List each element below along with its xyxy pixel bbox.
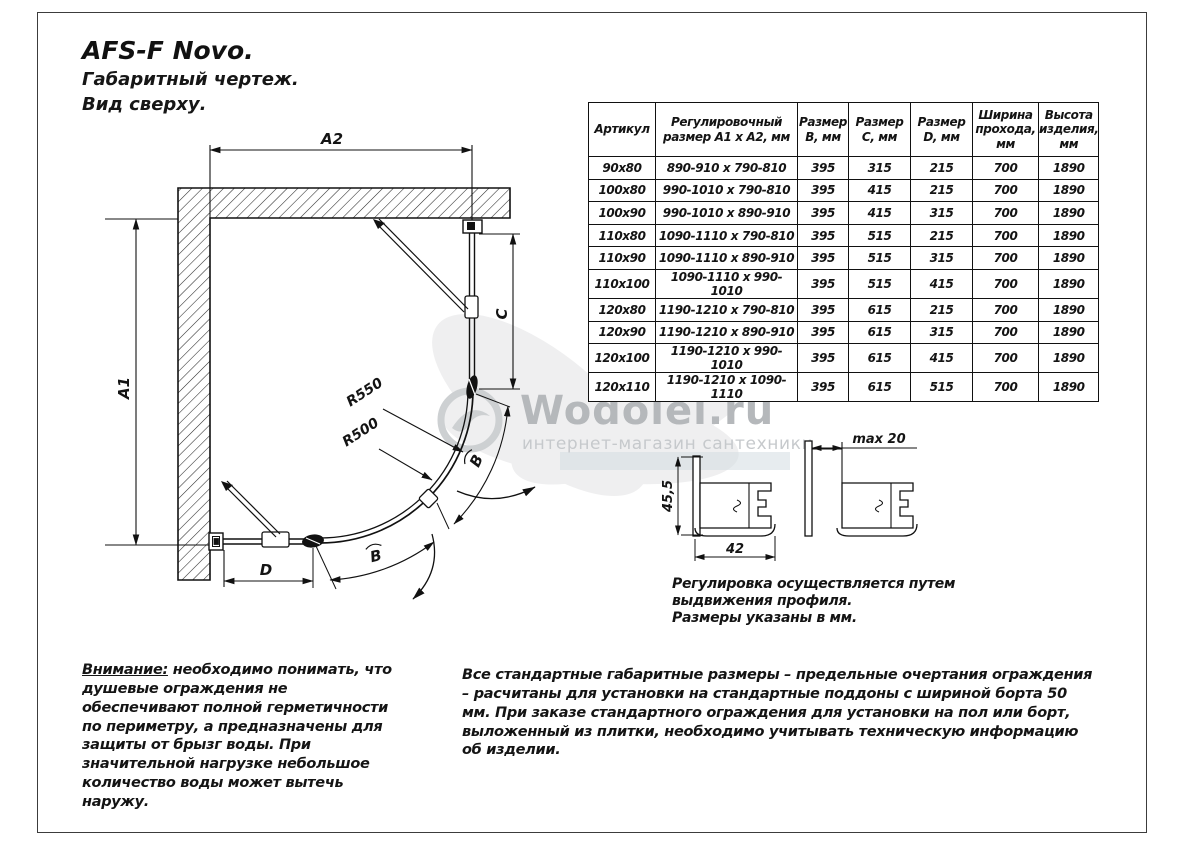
table-cell: 1890: [1039, 298, 1099, 321]
table-cell: 100x80: [589, 179, 656, 202]
label-45-5: 45,5: [661, 480, 676, 513]
table-cell: 315: [849, 157, 911, 180]
product-title: AFS-F Novo.: [82, 36, 299, 65]
table-cell: 215: [911, 224, 973, 247]
fixed-panel-right: [463, 220, 482, 382]
table-cell: 1090-1110 х 790-810: [656, 224, 798, 247]
table-cell: 415: [911, 344, 973, 373]
table-row: 110x1001090-1110 х 990-10103955154157001…: [589, 269, 1099, 298]
table-cell: 700: [973, 344, 1039, 373]
label-b-upper: B: [466, 452, 487, 470]
table-cell: 1190-1210 х 790-810: [656, 298, 798, 321]
table-cell: 700: [973, 202, 1039, 225]
table-cell: 315: [911, 202, 973, 225]
table-cell: 1890: [1039, 179, 1099, 202]
table-cell: 395: [798, 179, 849, 202]
table-header-cell: Размер B, мм: [798, 103, 849, 157]
table-cell: 415: [849, 179, 911, 202]
table-cell: 215: [911, 157, 973, 180]
table-cell: 515: [849, 247, 911, 270]
swing-arrow-right: [457, 487, 535, 499]
table-cell: 120x80: [589, 298, 656, 321]
radius-callout-inner: R500: [340, 415, 432, 480]
table-cell: 120x90: [589, 321, 656, 344]
table-header-cell: Размер C, мм: [849, 103, 911, 157]
table-cell: 700: [973, 373, 1039, 402]
pivot-right: [464, 374, 510, 407]
table-cell: 1890: [1039, 224, 1099, 247]
table-cell: 120x110: [589, 373, 656, 402]
table-row: 90x80890-910 х 790-8103953152157001890: [589, 157, 1099, 180]
table-cell: 700: [973, 157, 1039, 180]
table-row: 110x801090-1110 х 790-810395515215700189…: [589, 224, 1099, 247]
table-row: 120x801190-1210 х 790-810395615215700189…: [589, 298, 1099, 321]
label-b-lower: B: [368, 546, 383, 566]
table-cell: 1090-1110 х 890-910: [656, 247, 798, 270]
table-header-cell: Регулировочный размер A1 х A2, мм: [656, 103, 798, 157]
table-cell: 415: [849, 202, 911, 225]
table-cell: 1890: [1039, 269, 1099, 298]
drawing-type-label: Габаритный чертеж.: [82, 69, 299, 90]
top-view-drawing: A2 A1 C: [80, 130, 580, 640]
table-row: 120x1101190-1210 х 1090-1110395615515700…: [589, 373, 1099, 402]
table-cell: 615: [849, 344, 911, 373]
warning-label: Внимание:: [82, 662, 168, 678]
table-cell: 1090-1110 х 990-1010: [656, 269, 798, 298]
table-cell: 90x80: [589, 157, 656, 180]
table-cell: 990-1010 х 790-810: [656, 179, 798, 202]
table-cell: 990-1010 х 890-910: [656, 202, 798, 225]
adjustment-note-text: Регулировка осуществляется путем выдвиже…: [672, 576, 972, 610]
table-cell: 615: [849, 373, 911, 402]
table-header-row: АртикулРегулировочный размер A1 х A2, мм…: [589, 103, 1099, 157]
units-note-text: Размеры указаны в мм.: [672, 610, 972, 627]
support-brace-top: [373, 219, 468, 312]
table-cell: 700: [973, 269, 1039, 298]
table-cell: 700: [973, 247, 1039, 270]
table-cell: 110x80: [589, 224, 656, 247]
table-header-cell: Ширина прохода, мм: [973, 103, 1039, 157]
profile-section-closed: [693, 456, 775, 536]
table-cell: 395: [798, 202, 849, 225]
label-max20: max 20: [852, 432, 905, 447]
table-row: 100x80990-1010 х 790-8103954152157001890: [589, 179, 1099, 202]
adjustment-note: Регулировка осуществляется путем выдвиже…: [672, 576, 972, 626]
table-cell: 700: [973, 224, 1039, 247]
table-cell: 395: [798, 321, 849, 344]
table-cell: 315: [911, 247, 973, 270]
title-block: AFS-F Novo. Габаритный чертеж. Вид сверх…: [82, 36, 299, 115]
table-cell: 395: [798, 344, 849, 373]
size-table: АртикулРегулировочный размер A1 х A2, мм…: [588, 102, 1099, 402]
label-42: 42: [725, 542, 744, 557]
table-cell: 395: [798, 373, 849, 402]
installation-footnote: Все стандартные габаритные размеры – пре…: [462, 666, 1096, 760]
support-brace-bottom: [221, 481, 280, 537]
table-cell: 215: [911, 179, 973, 202]
warning-note: Внимание: необходимо понимать, что душев…: [82, 661, 392, 812]
table-cell: 315: [911, 321, 973, 344]
table-cell: 1890: [1039, 344, 1099, 373]
profile-section-extended: [805, 441, 917, 536]
table-cell: 1890: [1039, 202, 1099, 225]
table-cell: 395: [798, 247, 849, 270]
table-cell: 890-910 х 790-810: [656, 157, 798, 180]
table-cell: 700: [973, 179, 1039, 202]
label-a2: A2: [320, 130, 343, 148]
fixed-panel-bottom: [209, 532, 310, 550]
table-header-cell: Высота изделия, мм: [1039, 103, 1099, 157]
table-cell: 1190-1210 х 990-1010: [656, 344, 798, 373]
table-row: 120x901190-1210 х 890-910395615315700189…: [589, 321, 1099, 344]
table-cell: 395: [798, 157, 849, 180]
table-cell: 1890: [1039, 247, 1099, 270]
table-cell: 100x90: [589, 202, 656, 225]
table-cell: 415: [911, 269, 973, 298]
table-cell: 1890: [1039, 321, 1099, 344]
view-label: Вид сверху.: [82, 94, 299, 115]
label-c: C: [493, 308, 511, 319]
label-r500: R500: [340, 415, 382, 450]
drawing-sheet: Wodolei.ru интернет-магазин сантехники A…: [0, 0, 1200, 848]
table-cell: 1890: [1039, 373, 1099, 402]
table-cell: 1190-1210 х 1090-1110: [656, 373, 798, 402]
table-cell: 215: [911, 298, 973, 321]
warning-text: необходимо понимать, что душевые огражде…: [82, 662, 392, 810]
table-cell: 395: [798, 298, 849, 321]
label-r550: R550: [344, 375, 386, 410]
table-row: 120x1001190-1210 х 990-10103956154157001…: [589, 344, 1099, 373]
table-cell: 700: [973, 321, 1039, 344]
wall-hatch: [178, 188, 510, 580]
table-cell: 515: [911, 373, 973, 402]
table-row: 100x90990-1010 х 890-9103954153157001890: [589, 202, 1099, 225]
table-cell: 1890: [1039, 157, 1099, 180]
table-header-cell: Артикул: [589, 103, 656, 157]
table-cell: 395: [798, 269, 849, 298]
table-cell: 395: [798, 224, 849, 247]
table-cell: 700: [973, 298, 1039, 321]
table-cell: 615: [849, 298, 911, 321]
table-header-cell: Размер D, мм: [911, 103, 973, 157]
profile-sections-drawing: 45,5 42 max 20: [645, 428, 965, 573]
curved-door-glass: [320, 390, 473, 543]
table-row: 110x901090-1110 х 890-910395515315700189…: [589, 247, 1099, 270]
label-d: D: [260, 561, 272, 579]
table-cell: 110x100: [589, 269, 656, 298]
table-cell: 110x90: [589, 247, 656, 270]
table-cell: 515: [849, 269, 911, 298]
size-table-body: 90x80890-910 х 790-810395315215700189010…: [589, 157, 1099, 402]
table-cell: 1190-1210 х 890-910: [656, 321, 798, 344]
table-cell: 120x100: [589, 344, 656, 373]
label-a1: A1: [115, 377, 133, 400]
table-cell: 615: [849, 321, 911, 344]
table-cell: 515: [849, 224, 911, 247]
dimension-b-upper: B: [454, 406, 508, 524]
dimension-b-lower: B: [330, 503, 449, 580]
